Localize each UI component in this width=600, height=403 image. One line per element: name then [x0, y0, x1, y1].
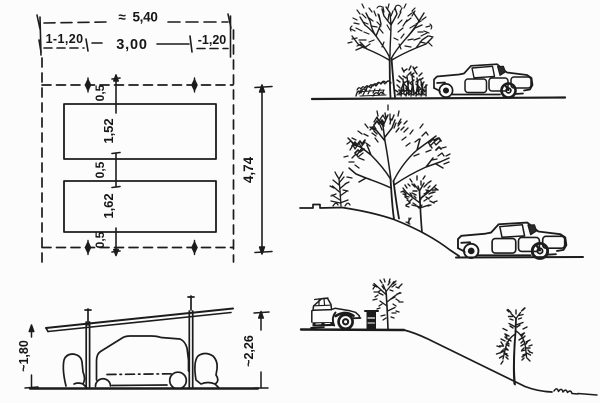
svg-text:~1,80: ~1,80 — [17, 340, 31, 372]
svg-text:~2,26: ~2,26 — [242, 335, 256, 367]
svg-text:4,74: 4,74 — [241, 156, 256, 183]
svg-text:≈ 5,40: ≈ 5,40 — [118, 10, 157, 25]
svg-text:1,52: 1,52 — [101, 118, 116, 143]
svg-text:-1,20: -1,20 — [198, 33, 227, 47]
svg-text:1,62: 1,62 — [101, 193, 116, 218]
svg-text:1-1,20: 1-1,20 — [46, 32, 84, 46]
svg-text:0,5: 0,5 — [93, 84, 107, 101]
svg-text:0,5: 0,5 — [93, 161, 107, 178]
svg-text:3,00: 3,00 — [116, 37, 147, 53]
svg-text:0,5: 0,5 — [93, 231, 107, 248]
